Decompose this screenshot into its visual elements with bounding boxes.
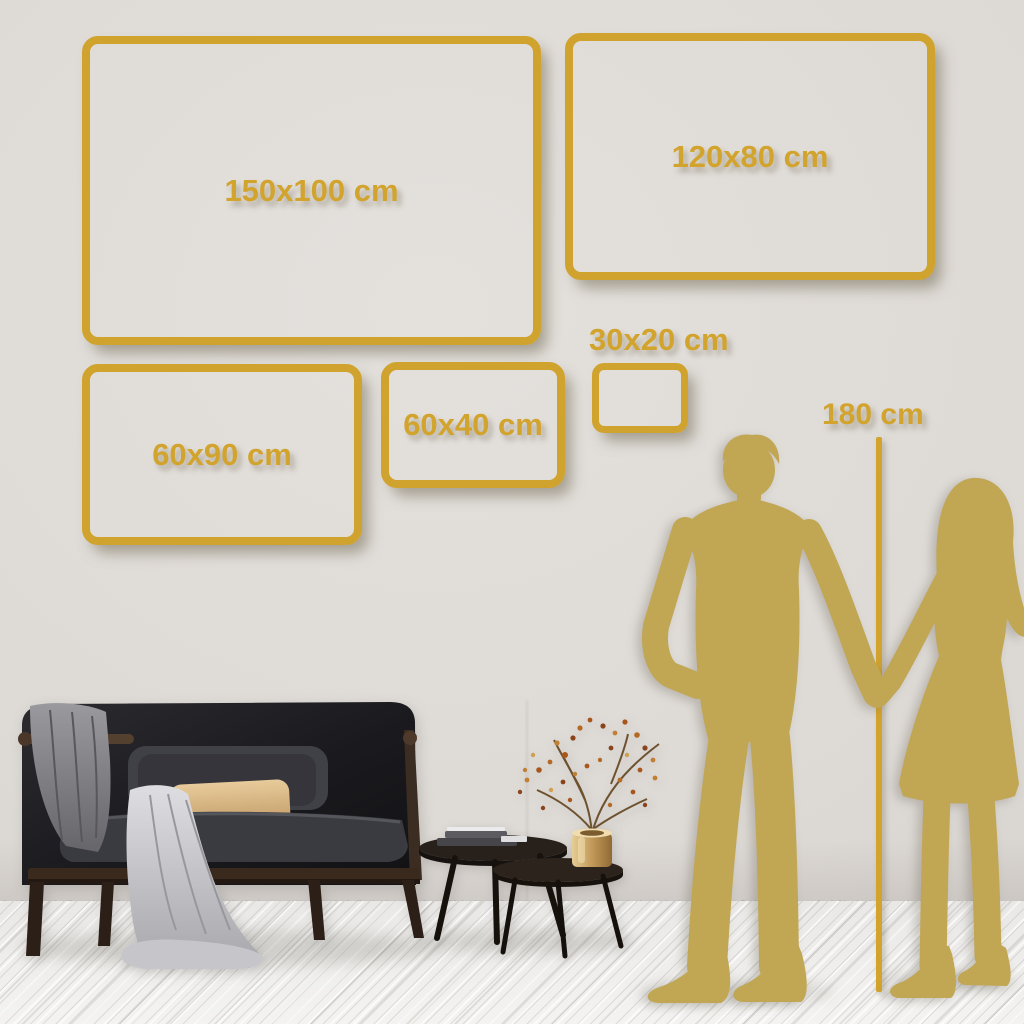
sofa-rod-knob-left bbox=[18, 732, 32, 746]
size-label-60x40: 60x40 cm bbox=[403, 407, 543, 443]
sofa-leg bbox=[98, 882, 114, 946]
gold-vase-highlight bbox=[578, 837, 585, 863]
size-frame-60x40: 60x40 cm bbox=[381, 362, 565, 488]
books-stack bbox=[437, 827, 527, 846]
size-label-150x100: 150x100 cm bbox=[224, 173, 398, 209]
size-frame-150x100: 150x100 cm bbox=[82, 36, 541, 345]
size-label-30x20: 30x20 cm bbox=[589, 322, 729, 358]
couple-silhouettes bbox=[595, 420, 1024, 1010]
woman-silhouette bbox=[870, 478, 1024, 998]
wall-art-size-guide-scene: 150x100 cm 120x80 cm 60x90 cm 60x40 cm 3… bbox=[0, 0, 1024, 1024]
sofa-base-rail-shade bbox=[28, 879, 420, 884]
sofa bbox=[10, 690, 440, 970]
man-silhouette bbox=[648, 434, 888, 1003]
sofa-leg bbox=[308, 880, 325, 940]
size-frame-120x80: 120x80 cm bbox=[565, 33, 935, 280]
sofa-leg bbox=[26, 882, 44, 956]
size-label-120x80: 120x80 cm bbox=[672, 139, 829, 175]
size-label-60x90: 60x90 cm bbox=[152, 437, 292, 473]
size-frame-60x90: 60x90 cm bbox=[82, 364, 362, 545]
